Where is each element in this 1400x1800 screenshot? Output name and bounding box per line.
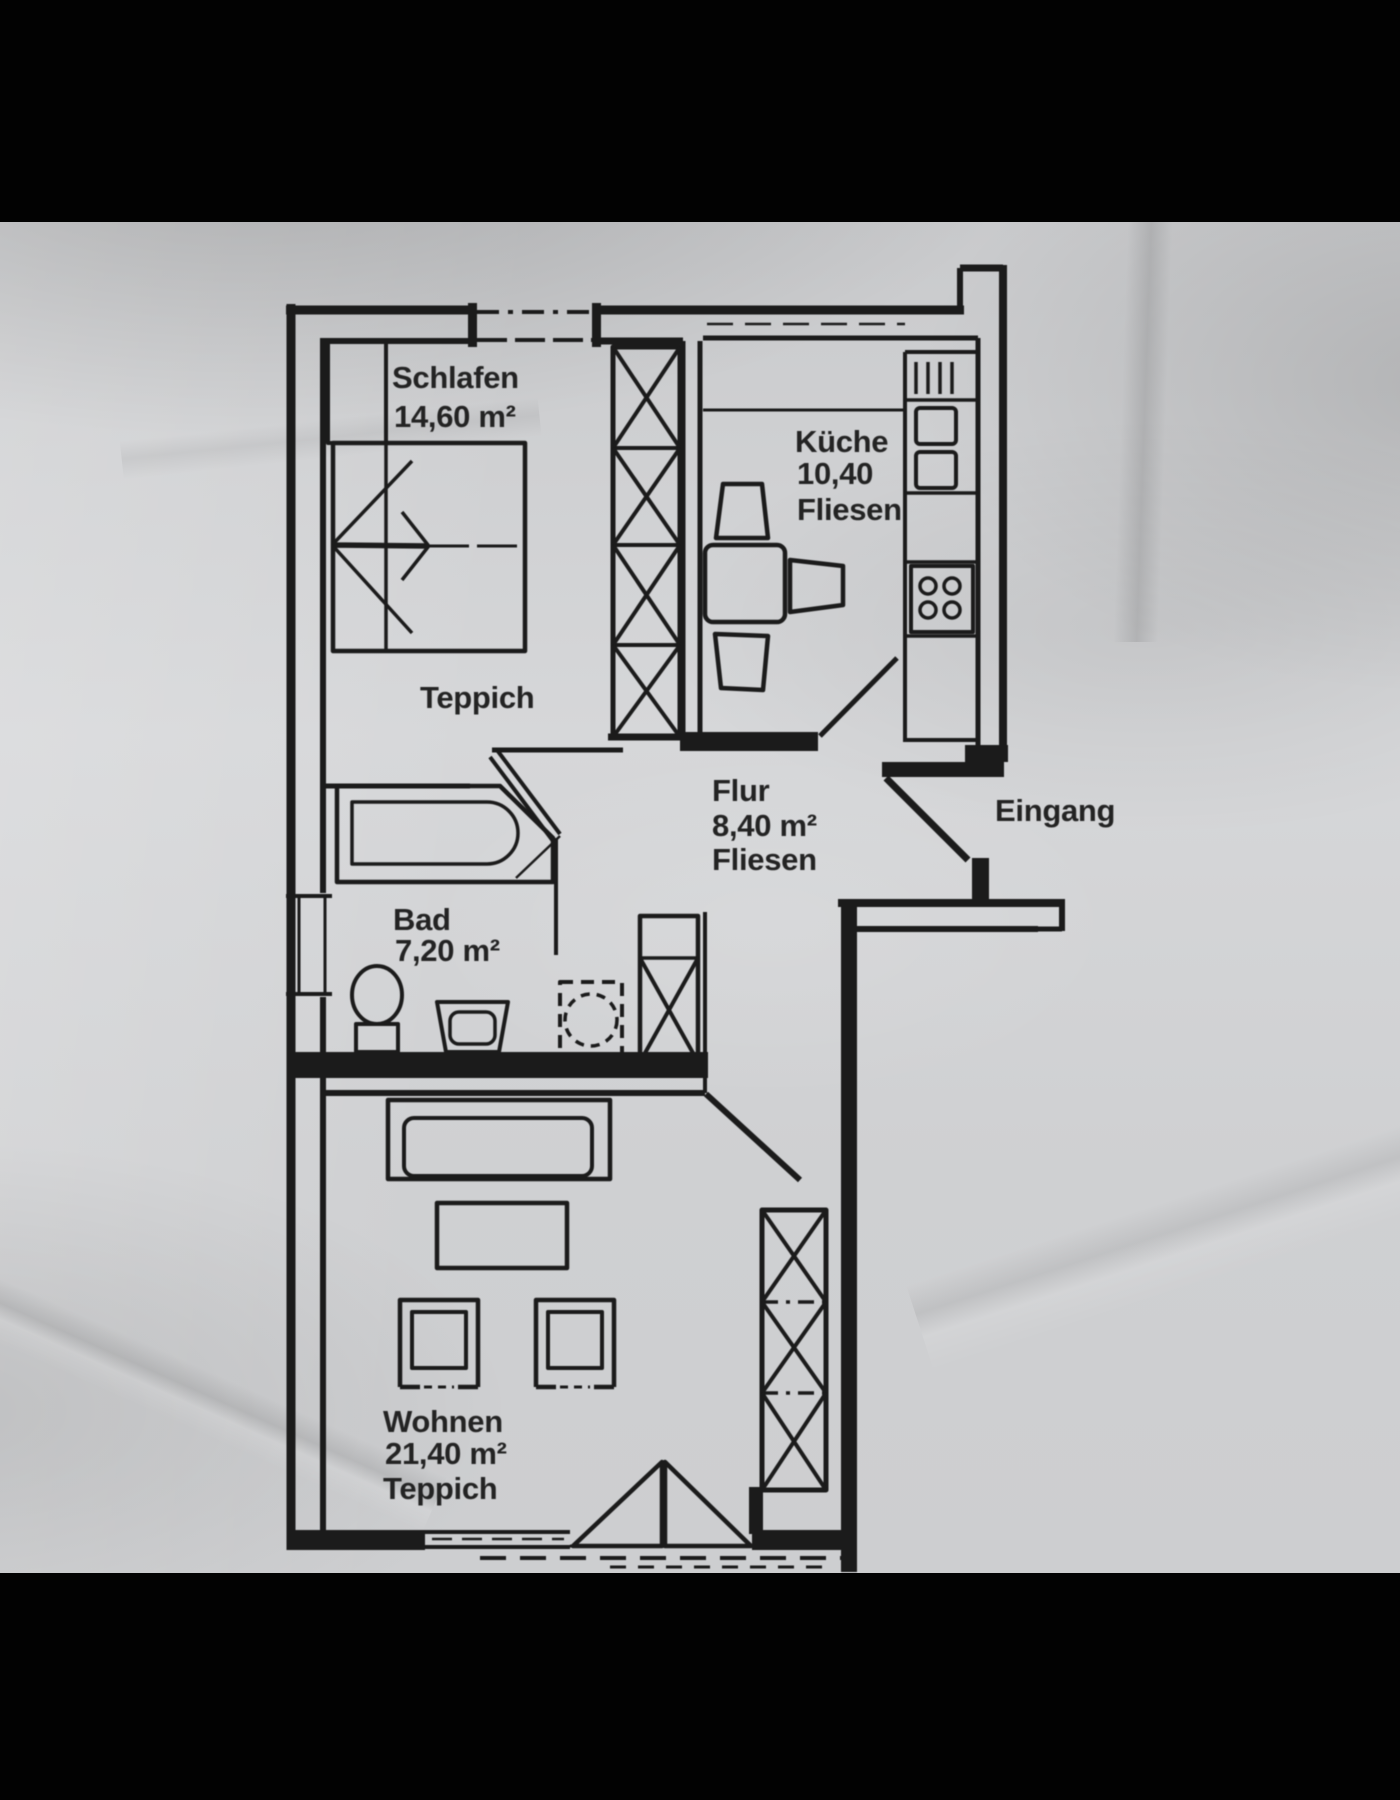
chair [790,560,843,612]
label-flur-area: 8,40 m² [712,808,817,843]
room-kueche: Küche 10,40 Fliesen [703,352,978,742]
room-wohnen: Wohnen 21,40 m² Teppich [383,1100,826,1546]
washing-machine [560,982,622,1058]
balcony-door [573,1462,751,1546]
bedroom-door [490,750,560,878]
kitchen-table [705,545,785,622]
fridge [916,408,956,444]
stove [911,566,973,632]
label-wohnen-name: Wohnen [383,1404,503,1439]
label-wohnen-area: 21,40 m² [385,1436,507,1471]
label-schlafen-name: Schlafen [392,360,519,395]
label-wohnen-floor: Teppich [383,1471,497,1506]
entrance-door [886,778,968,860]
oven [916,452,956,488]
sofa [388,1100,610,1179]
label-kueche-name: Küche [795,424,888,459]
armchair [536,1300,614,1387]
nightstand [328,341,386,443]
kitchen-window [703,324,978,338]
label-kueche-floor: Fliesen [797,492,902,527]
washbasin [437,1002,508,1052]
living-room-door [706,1094,800,1180]
chair [715,634,768,690]
interior-walls [291,341,978,1180]
label-schlafen-floor: Teppich [420,680,534,715]
label-eingang: Eingang [995,793,1115,828]
label-bad-area: 7,20 m² [395,933,500,968]
south-wall [838,899,1065,931]
letterbox-top [0,0,1400,222]
wall-bump-out [960,268,1003,310]
bedroom-window [468,303,601,347]
living-wardrobe [749,1210,826,1534]
room-bad: Bad 7,20 m² [337,786,622,1058]
label-flur-floor: Fliesen [712,842,817,877]
entrance-jamb [882,762,1004,777]
right-wall [841,903,857,1572]
letterbox-bottom [0,1573,1400,1800]
armchair [400,1300,478,1387]
wall-end-cap [965,745,1008,762]
sink-unit [916,362,952,394]
label-schlafen-area: 14,60 m² [394,399,516,434]
hall-closet [640,916,698,1062]
kitchen-counter [905,352,978,742]
coffee-table [437,1203,567,1268]
toilet [352,966,402,1052]
label-bad-name: Bad [393,902,451,937]
floor-plan-drawing: Schlafen 14,60 m² Teppich [0,0,1400,1800]
label-flur-name: Flur [712,773,770,808]
built-in-wardrobe [608,347,685,737]
chair [716,484,768,538]
double-bed [333,443,525,651]
floor-plan-photo: Schlafen 14,60 m² Teppich [0,0,1400,1800]
room-flur: Flur 8,40 m² Fliesen Eingang [640,773,1115,1062]
bottom-wall [291,1530,849,1567]
label-kueche-area: 10,40 [797,456,873,491]
entrance-stub [972,858,989,901]
room-schlafen: Schlafen 14,60 m² Teppich [328,341,534,715]
kitchen-door [820,658,897,736]
